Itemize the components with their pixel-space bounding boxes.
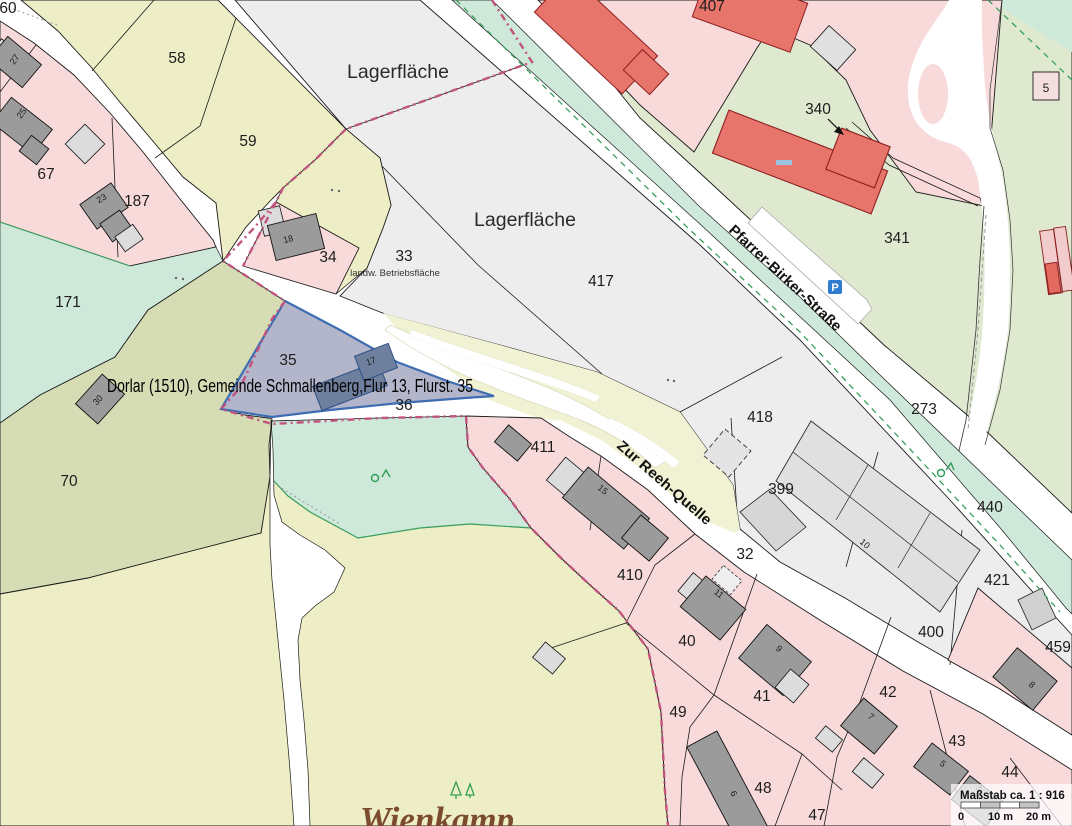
svg-text:49: 49 bbox=[669, 704, 686, 721]
svg-text:340: 340 bbox=[805, 101, 831, 118]
svg-text:67: 67 bbox=[37, 166, 54, 183]
svg-text:36: 36 bbox=[395, 397, 412, 414]
svg-text:43: 43 bbox=[948, 733, 965, 750]
svg-text:417: 417 bbox=[588, 273, 614, 290]
svg-text:410: 410 bbox=[617, 567, 643, 584]
svg-text:P: P bbox=[831, 282, 838, 294]
svg-text:Lagerfläche: Lagerfläche bbox=[474, 209, 576, 231]
svg-text:40: 40 bbox=[678, 633, 696, 650]
svg-text:407: 407 bbox=[699, 0, 725, 15]
svg-text:171: 171 bbox=[55, 294, 81, 311]
svg-text:5: 5 bbox=[1043, 81, 1050, 95]
svg-text:41: 41 bbox=[753, 688, 770, 705]
svg-text:47: 47 bbox=[808, 807, 825, 824]
svg-text:Lagerfläche: Lagerfläche bbox=[347, 61, 449, 83]
svg-text:Dorlar (1510), Gemeinde Schmal: Dorlar (1510), Gemeinde Schmallenberg,Fl… bbox=[107, 376, 473, 396]
svg-text:418: 418 bbox=[747, 409, 773, 426]
svg-text:Wienkamp: Wienkamp bbox=[360, 800, 514, 826]
svg-text:33: 33 bbox=[395, 248, 412, 265]
svg-text:20 m: 20 m bbox=[1026, 811, 1051, 823]
svg-text:35: 35 bbox=[279, 352, 296, 369]
svg-text:421: 421 bbox=[984, 572, 1010, 589]
svg-text:32: 32 bbox=[736, 546, 753, 563]
svg-text:Maßstab ca. 1 : 916: Maßstab ca. 1 : 916 bbox=[960, 790, 1065, 802]
svg-text:42: 42 bbox=[879, 684, 896, 701]
svg-text:10 m: 10 m bbox=[988, 811, 1013, 823]
svg-text:70: 70 bbox=[60, 473, 78, 490]
svg-text:273: 273 bbox=[911, 401, 937, 418]
svg-text:34: 34 bbox=[319, 249, 337, 266]
svg-text:landw. Betriebsfläche: landw. Betriebsfläche bbox=[350, 268, 440, 279]
svg-text:60: 60 bbox=[0, 0, 17, 17]
svg-text:399: 399 bbox=[768, 481, 794, 498]
svg-text:459: 459 bbox=[1045, 639, 1071, 656]
svg-text:58: 58 bbox=[168, 50, 185, 67]
svg-text:48: 48 bbox=[754, 780, 771, 797]
svg-text:187: 187 bbox=[124, 193, 150, 210]
svg-text:440: 440 bbox=[977, 499, 1003, 516]
svg-text:44: 44 bbox=[1001, 764, 1019, 781]
svg-text:341: 341 bbox=[884, 230, 910, 247]
svg-text:59: 59 bbox=[239, 133, 256, 150]
svg-text:0: 0 bbox=[958, 811, 964, 823]
svg-text:400: 400 bbox=[918, 624, 944, 641]
svg-text:411: 411 bbox=[531, 439, 556, 456]
